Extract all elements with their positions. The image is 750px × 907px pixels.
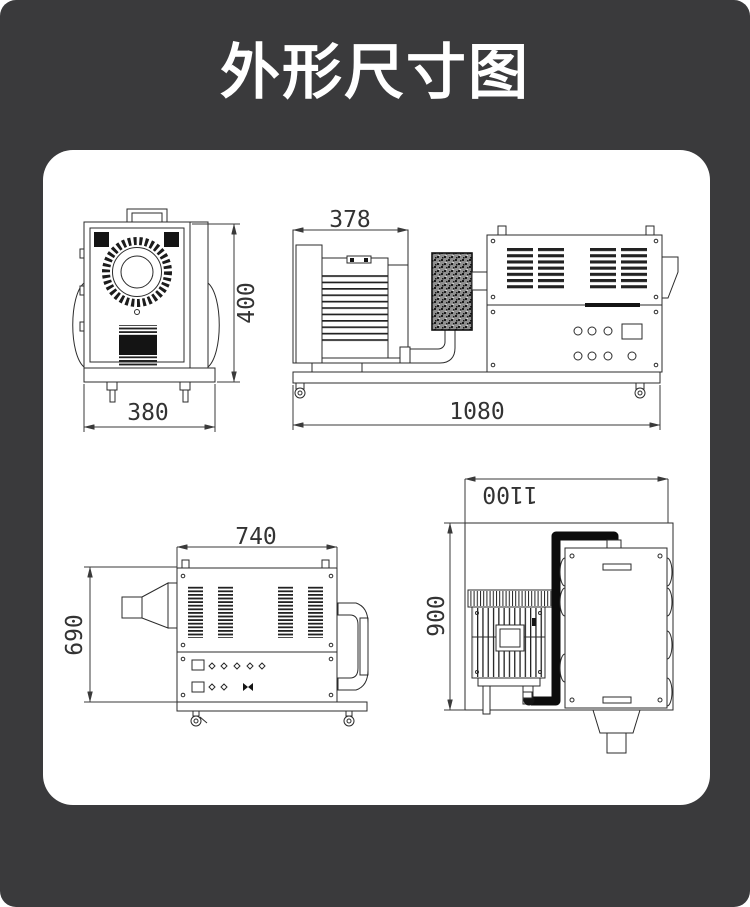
- page-title: 外形尺寸图: [0, 24, 750, 111]
- side-view-drawing: 378 1080: [293, 207, 678, 430]
- dim-left-width-label: 740: [235, 524, 277, 550]
- corner-bolt-left: [94, 232, 109, 247]
- air-outlet-side: [662, 257, 678, 298]
- control-cabinet-side: [487, 226, 662, 372]
- corner-bolt-right: [164, 232, 179, 247]
- cabinet-top-view: [560, 548, 672, 708]
- dimension-drawings-canvas: 400 380: [43, 150, 710, 805]
- front-grille: [119, 325, 157, 367]
- base-and-casters-side: [293, 372, 660, 398]
- dim-front-width-label: 380: [127, 400, 169, 426]
- dim-front-width: 380: [84, 384, 215, 432]
- fan-bracket-hatched: [338, 603, 368, 690]
- page-background: 外形尺寸图: [0, 0, 750, 907]
- dim-top-length: 1100: [465, 479, 668, 523]
- cone-nozzle-top-view: [593, 710, 640, 753]
- dim-side-width: 378: [293, 207, 408, 233]
- front-view-drawing: 400 380: [73, 209, 260, 432]
- dim-top-depth-label: 900: [424, 595, 450, 637]
- left-side-view-drawing: 740 690: [62, 524, 368, 726]
- base-and-casters-front: [84, 368, 215, 402]
- blower-motor: [293, 230, 410, 372]
- cone-nozzle-left: [122, 583, 177, 628]
- motor-top-view: [468, 590, 555, 714]
- dim-side-length-label: 1080: [449, 399, 504, 425]
- dim-left-height-label: 690: [62, 614, 88, 656]
- elbow-pipe: [410, 330, 455, 363]
- dim-side-length: 1080: [293, 385, 660, 430]
- dim-top-depth: 900: [424, 523, 465, 710]
- filter-element: [432, 253, 472, 330]
- dim-left-width: 740: [177, 524, 337, 568]
- cabinet-left-view: [177, 560, 337, 702]
- top-handle: [127, 209, 167, 223]
- filter-connector: [472, 272, 487, 290]
- dim-front-height-label: 400: [234, 282, 260, 324]
- dim-side-width-label: 378: [329, 207, 371, 233]
- dim-top-length-label: 1100: [482, 481, 537, 507]
- drawing-panel: 400 380: [43, 150, 710, 805]
- base-and-casters-left-view: [177, 702, 367, 726]
- top-view-drawing: 1100 900: [424, 479, 673, 753]
